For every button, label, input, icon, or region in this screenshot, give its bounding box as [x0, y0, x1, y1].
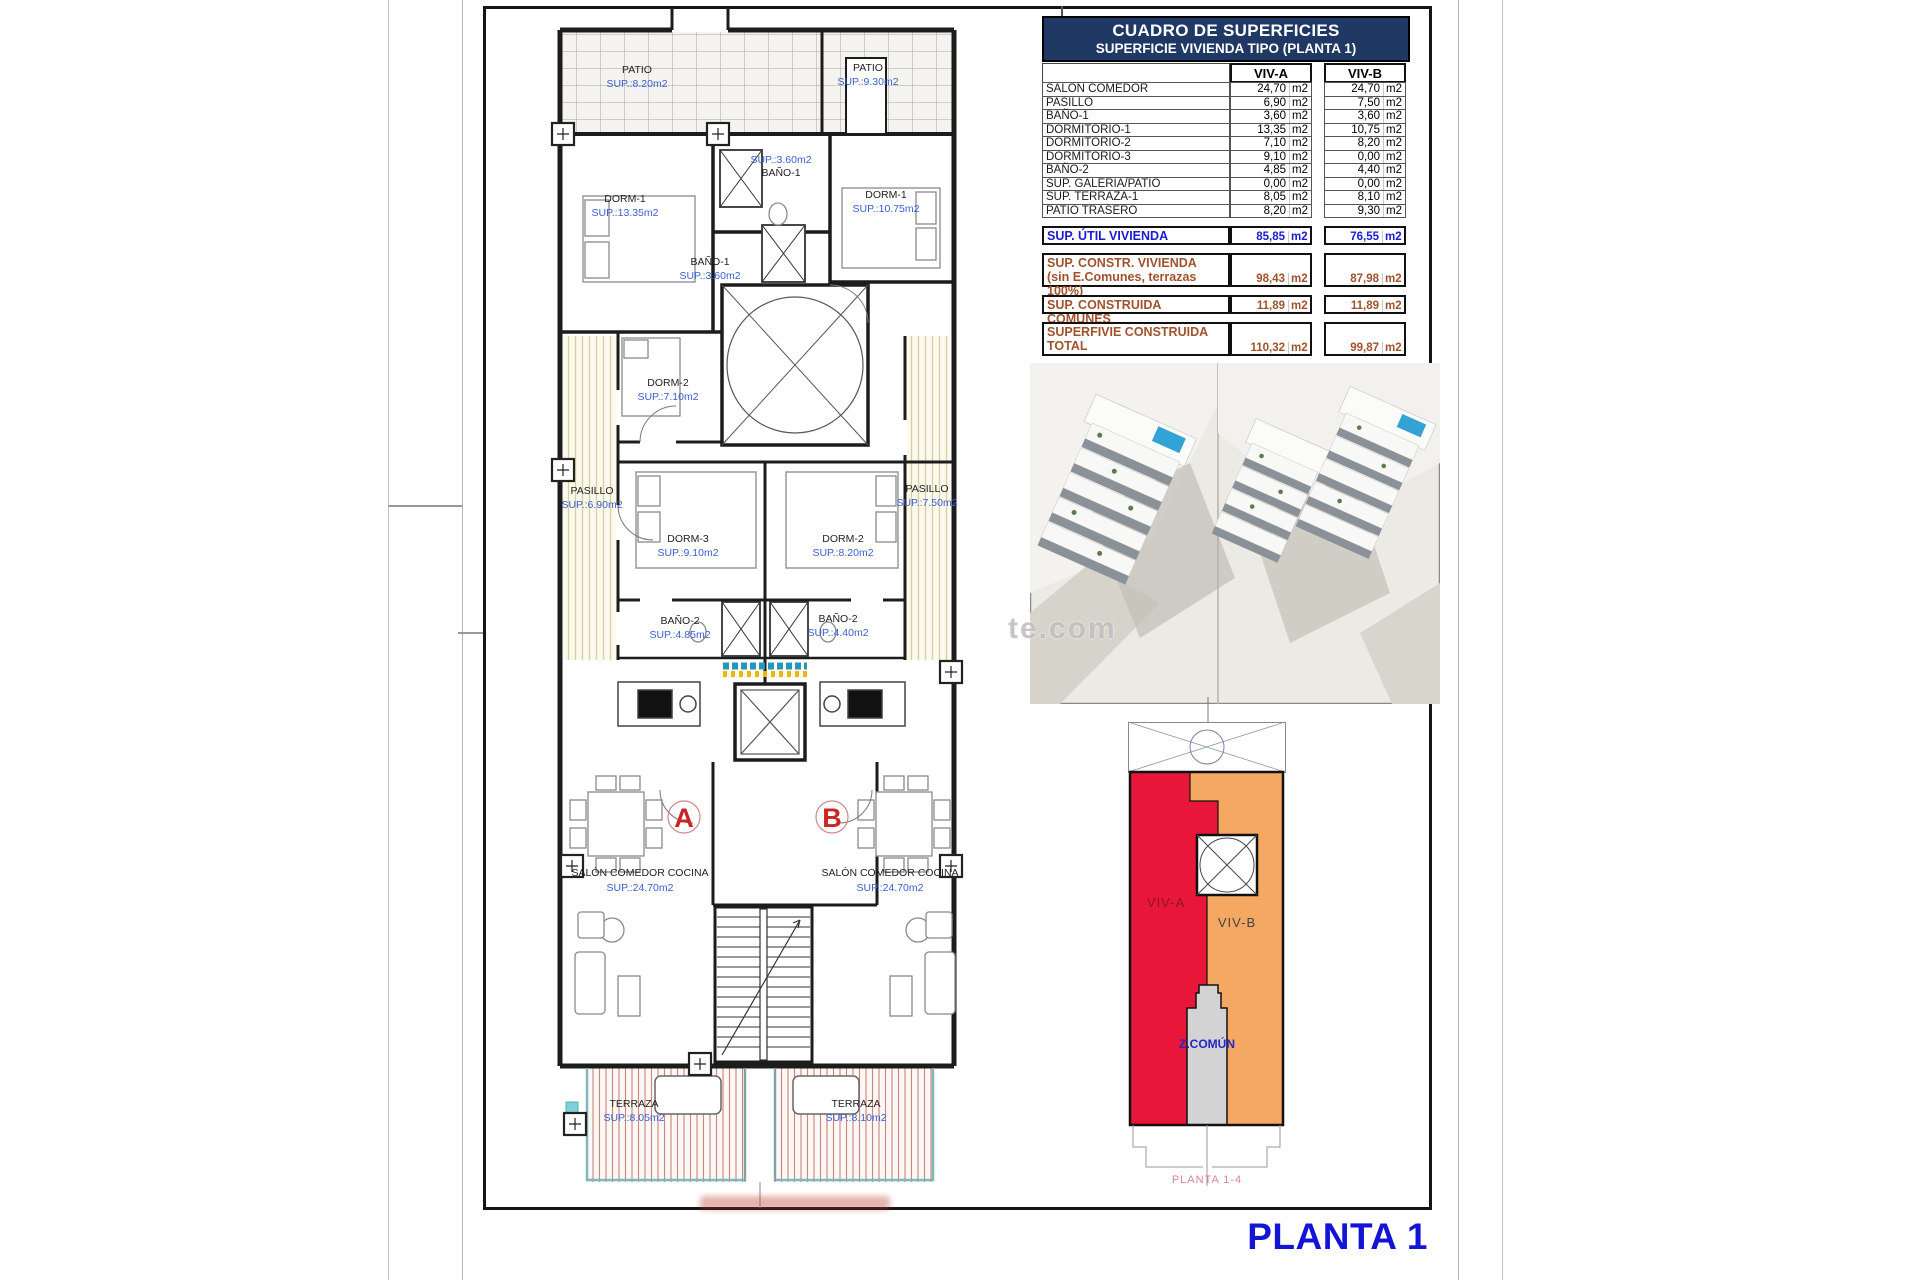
- summary-total: SUPERFIVIE CONSTRUIDATOTAL 110,32m2 99,8…: [1042, 322, 1410, 356]
- floor-plan: A B PATIO SUP.:8.20m2 PATIO SUP.:9.30m2 …: [455, 0, 1020, 1225]
- svg-text:SUP.:4.40m2: SUP.:4.40m2: [807, 627, 868, 639]
- unit-b-letter: B: [822, 803, 842, 833]
- summary-constr: SUP. CONSTR. VIVIENDA(sin E.Comunes, ter…: [1042, 253, 1410, 287]
- unit-schematic: VIV-A VIV-B Z.COMÚN PLANTA 1-4: [1096, 690, 1304, 1195]
- table-row: BAÑO-13,60m23,60m2: [1042, 109, 1410, 124]
- svg-text:SUP.:13.35m2: SUP.:13.35m2: [592, 207, 659, 219]
- margin-tick: [388, 505, 462, 507]
- table-subtitle: SUPERFICIE VIVIENDA TIPO (PLANTA 1): [1044, 41, 1408, 56]
- room-label: BAÑO-1: [690, 255, 729, 268]
- room-label: PASILLO: [906, 483, 949, 495]
- table-title: CUADRO DE SUPERFICIES: [1044, 21, 1408, 41]
- room-label: BAÑO-2: [660, 614, 699, 627]
- comun-label: Z.COMÚN: [1179, 1036, 1235, 1051]
- table-row: BAÑO-24,85m24,40m2: [1042, 163, 1410, 178]
- table-row: DORMITORIO-113,35m210,75m2: [1042, 123, 1410, 138]
- staircase: [715, 907, 812, 1062]
- table-row: PASILLO6,90m27,50m2: [1042, 96, 1410, 111]
- sheet-edge-right-outer: [1502, 0, 1503, 1280]
- room-label: PATIO: [622, 64, 652, 76]
- summary-util: SUP. ÚTIL VIVIENDA 85,85m2 76,55m2: [1042, 226, 1410, 245]
- col-viv-b: VIV-B: [1324, 63, 1406, 83]
- svg-text:SUP.:6.90m2: SUP.:6.90m2: [561, 499, 622, 511]
- table-column-headers: VIV-A VIV-B: [1042, 63, 1410, 83]
- table-row: SUP. GALERIA/PATIO0,00m20,00m2: [1042, 177, 1410, 192]
- svg-text:SUP.:24.70m2: SUP.:24.70m2: [607, 882, 674, 894]
- room-label: SALÓN COMEDOR COCINA: [821, 866, 958, 879]
- viv-a-label: VIV-A: [1147, 895, 1185, 910]
- viv-b-label: VIV-B: [1218, 915, 1256, 930]
- svg-text:SUP.:4.85m2: SUP.:4.85m2: [649, 629, 710, 641]
- schematic-roof-outline: [1128, 722, 1286, 773]
- room-label: DORM-1: [604, 193, 646, 205]
- page-title: PLANTA 1: [1148, 1216, 1428, 1258]
- room-label: TERRAZA: [609, 1098, 658, 1110]
- render-3d-images: [1030, 363, 1440, 704]
- surface-table: CUADRO DE SUPERFICIES SUPERFICIE VIVIEND…: [1042, 16, 1410, 356]
- room-label: DORM-2: [822, 533, 864, 545]
- table-row: SUP. TERRAZA-18,05m28,10m2: [1042, 190, 1410, 205]
- watermark-text: te.com: [1008, 612, 1117, 646]
- sheet-edge-right: [1458, 0, 1459, 1280]
- room-label: TERRAZA: [831, 1098, 880, 1110]
- table-row: DORMITORIO-39,10m20,00m2: [1042, 150, 1410, 165]
- room-label: SALÓN COMEDOR COCINA: [571, 866, 708, 879]
- table-row: PATIO TRASERO8,20m29,30m2: [1042, 204, 1410, 219]
- svg-text:SUP.:8.20m2: SUP.:8.20m2: [606, 78, 667, 90]
- corner-cell: [1042, 63, 1230, 83]
- room-label: BAÑO-1: [761, 166, 800, 179]
- svg-text:SUP.:10.75m2: SUP.:10.75m2: [853, 203, 920, 215]
- teal-chip: [566, 1102, 578, 1113]
- sheet-edge-left-outer: [388, 0, 389, 1280]
- unit-a-letter: A: [674, 803, 694, 833]
- elevator-shaft: [735, 684, 805, 760]
- room-label: DORM-2: [647, 377, 689, 389]
- table-row: DORMITORIO-27,10m28,20m2: [1042, 136, 1410, 151]
- room-label: DORM-1: [865, 189, 907, 201]
- schematic-caption: PLANTA 1-4: [1172, 1174, 1242, 1186]
- svg-text:SUP.:3.60m2: SUP.:3.60m2: [750, 154, 811, 166]
- schematic-core: [1197, 835, 1257, 895]
- svg-text:SUP.:7.10m2: SUP.:7.10m2: [637, 391, 698, 403]
- table-header: CUADRO DE SUPERFICIES SUPERFICIE VIVIEND…: [1042, 16, 1410, 62]
- col-viv-a: VIV-A: [1230, 63, 1312, 83]
- svg-text:SUP.:8.05m2: SUP.:8.05m2: [603, 1112, 664, 1124]
- svg-text:SUP.:24.70m2: SUP.:24.70m2: [857, 882, 924, 894]
- svg-text:SUP.:9.30m2: SUP.:9.30m2: [837, 76, 898, 88]
- summary-comunes: SUP. CONSTRUIDA COMUNES 11,89m2 11,89m2: [1042, 295, 1410, 314]
- watermark-red-blur: [700, 1196, 890, 1210]
- svg-text:SUP.:3.60m2: SUP.:3.60m2: [679, 270, 740, 282]
- svg-text:SUP.:9.10m2: SUP.:9.10m2: [657, 547, 718, 559]
- room-label: PASILLO: [571, 485, 614, 497]
- room-label: BAÑO-2: [818, 612, 857, 625]
- terrace-divider: [745, 1068, 775, 1208]
- svg-text:SUP.:8.10m2: SUP.:8.10m2: [825, 1112, 886, 1124]
- hall-a-hatch: [563, 336, 616, 660]
- svg-text:SUP.:8.20m2: SUP.:8.20m2: [812, 547, 873, 559]
- plan-sheet: A B PATIO SUP.:8.20m2 PATIO SUP.:9.30m2 …: [0, 0, 1920, 1280]
- room-label: PATIO: [853, 62, 883, 74]
- table-row: SALON COMEDOR24,70m224,70m2: [1042, 82, 1410, 97]
- svg-text:SUP.:7.50m2: SUP.:7.50m2: [896, 497, 957, 509]
- room-label: DORM-3: [667, 533, 709, 545]
- core-lightwell: [722, 285, 868, 445]
